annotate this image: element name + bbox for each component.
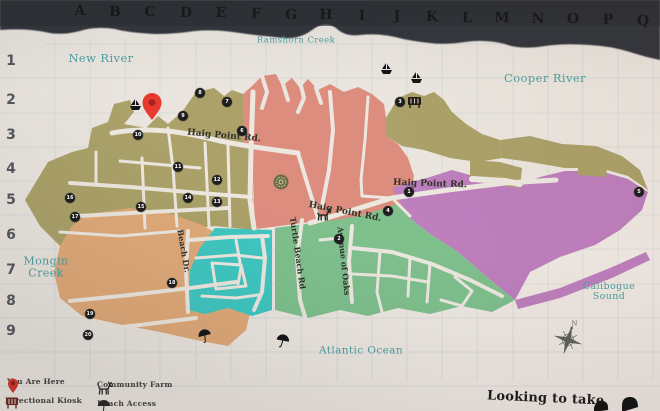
grid-letter-Q: Q xyxy=(634,12,652,28)
poi-marker-9: 9 xyxy=(178,111,188,121)
poi-marker-6: 6 xyxy=(237,126,247,136)
poi-marker-14: 14 xyxy=(183,193,193,203)
grid-letter-N: N xyxy=(528,11,546,27)
map-sign-photo: N ABCDEFGHIJKLMNOPQ 123456789 Ramshorn C… xyxy=(0,0,660,411)
you-are-here-pin-icon xyxy=(143,93,162,120)
region-olive-patch-b xyxy=(578,158,608,177)
legend-directional-kiosk: Directional Kiosk xyxy=(5,396,82,405)
water-label-calibogue-sound: Calibogue Sound xyxy=(583,282,635,302)
poi-marker-1: 1 xyxy=(404,187,414,197)
cropped-icons xyxy=(592,392,648,411)
legend-community-farm: Community Farm xyxy=(97,380,173,389)
poi-marker-11: 11 xyxy=(173,162,183,172)
poi-marker-12: 12 xyxy=(212,175,222,185)
tree-stamp-icon xyxy=(274,175,289,190)
grid-letter-O: O xyxy=(564,11,582,27)
grid-letter-L: L xyxy=(458,9,476,25)
poi-marker-8: 8 xyxy=(195,88,205,98)
ferry-icon xyxy=(130,98,141,110)
grid-number-7: 7 xyxy=(4,262,18,278)
poi-marker-7: 7 xyxy=(222,97,232,107)
grid-number-3: 3 xyxy=(4,127,18,143)
grid-number-8: 8 xyxy=(4,293,18,309)
grid-letter-I: I xyxy=(352,8,370,24)
poi-marker-20: 20 xyxy=(83,330,93,340)
grid-letter-K: K xyxy=(423,9,441,25)
poi-marker-19: 19 xyxy=(85,309,95,319)
water-label-atlantic-ocean: Atlantic Ocean xyxy=(319,345,403,356)
poi-marker-15: 15 xyxy=(136,202,146,212)
poi-marker-17: 17 xyxy=(70,212,80,222)
directional-kiosk-icon xyxy=(5,396,19,409)
beach-access-icon xyxy=(97,399,111,411)
water-label-cooper-river: Cooper River xyxy=(504,72,586,84)
grid-letter-E: E xyxy=(212,5,230,21)
grid-letter-G: G xyxy=(282,6,300,22)
poi-marker-10: 10 xyxy=(133,130,143,140)
poi-marker-4: 4 xyxy=(383,206,393,216)
community-farm-icon xyxy=(97,380,113,395)
grid-letter-A: A xyxy=(71,3,89,19)
ferry-icon xyxy=(381,63,392,74)
grid-letter-H: H xyxy=(317,7,335,23)
umbrella-icon xyxy=(276,333,290,348)
legend-beach-access: Beach Access xyxy=(97,399,156,408)
poi-marker-18: 18 xyxy=(167,278,177,288)
grid-letter-D: D xyxy=(176,5,194,21)
poi-marker-16: 16 xyxy=(65,193,75,203)
svg-text:N: N xyxy=(572,320,578,328)
ferry-icon xyxy=(411,72,422,83)
water-label-ramshorn-creek: Ramshorn Creek xyxy=(257,37,335,46)
water-label-mongin-creek: Mongin Creek xyxy=(23,255,68,278)
grid-letter-F: F xyxy=(247,6,265,22)
legend-you-are-here: You Are Here xyxy=(7,377,65,386)
grid-number-9: 9 xyxy=(4,323,18,339)
grid-letter-B: B xyxy=(106,3,124,19)
grid-letter-P: P xyxy=(599,12,617,28)
grid-number-1: 1 xyxy=(4,53,18,69)
grid-letter-J: J xyxy=(388,8,406,24)
poi-marker-2: 2 xyxy=(334,234,344,244)
grid-number-4: 4 xyxy=(4,161,18,177)
grid-number-6: 6 xyxy=(4,227,18,243)
poi-marker-13: 13 xyxy=(212,197,222,207)
grid-letter-C: C xyxy=(141,4,159,20)
location-pin-icon xyxy=(7,377,19,393)
water-label-new-river: New River xyxy=(68,52,133,64)
grid-letter-M: M xyxy=(493,10,511,26)
poi-marker-3: 3 xyxy=(395,97,405,107)
grid-number-5: 5 xyxy=(4,192,18,208)
grid-number-2: 2 xyxy=(4,92,18,108)
poi-marker-5: 5 xyxy=(634,187,644,197)
